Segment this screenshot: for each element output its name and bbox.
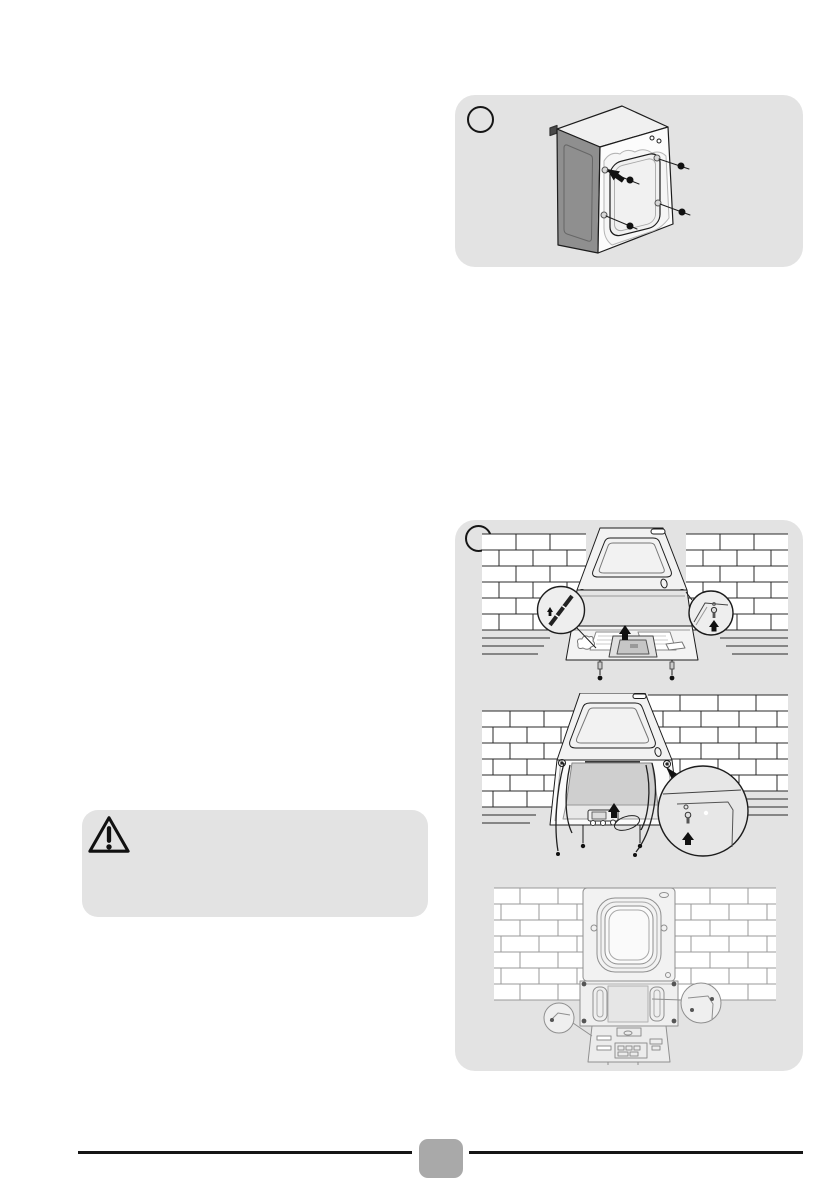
figure-panel-installation-steps: [455, 520, 803, 1071]
washer-side-face: [557, 129, 600, 253]
detail-circle-corner-bolt: [658, 766, 748, 856]
washer-underside: [572, 590, 692, 626]
footer-rule-left: [78, 1151, 412, 1154]
washer-top-face: [577, 528, 687, 597]
vent-hole: [657, 139, 661, 143]
hanging-bolts: [598, 660, 675, 680]
vent-hole: [650, 136, 654, 140]
washer-rear-isometric-illustration: [540, 98, 800, 261]
figure-panel-transit-bolts: [455, 95, 803, 267]
washer-interior: [556, 763, 661, 857]
washer-lid-lip: [550, 126, 557, 136]
back-cover-plate: [610, 152, 660, 238]
rear-panel-lower-housing: [580, 981, 678, 1026]
figure-step-marker: [467, 106, 494, 133]
warning-triangle-icon: [87, 812, 131, 856]
washer-tilted-base-removed-illustration: [480, 693, 790, 881]
washer-tilted-packaging-illustration: [480, 526, 790, 692]
rear-panel-upper: [583, 888, 675, 981]
base-flap-packaging: [566, 626, 698, 660]
warning-note-box: [82, 810, 428, 917]
footer-rule-right: [469, 1151, 803, 1154]
manual-page: [0, 0, 840, 1190]
base-plate: [588, 1026, 670, 1065]
washer-rear-panel-illustration: [480, 886, 790, 1066]
page-number-badge: [419, 1139, 463, 1178]
